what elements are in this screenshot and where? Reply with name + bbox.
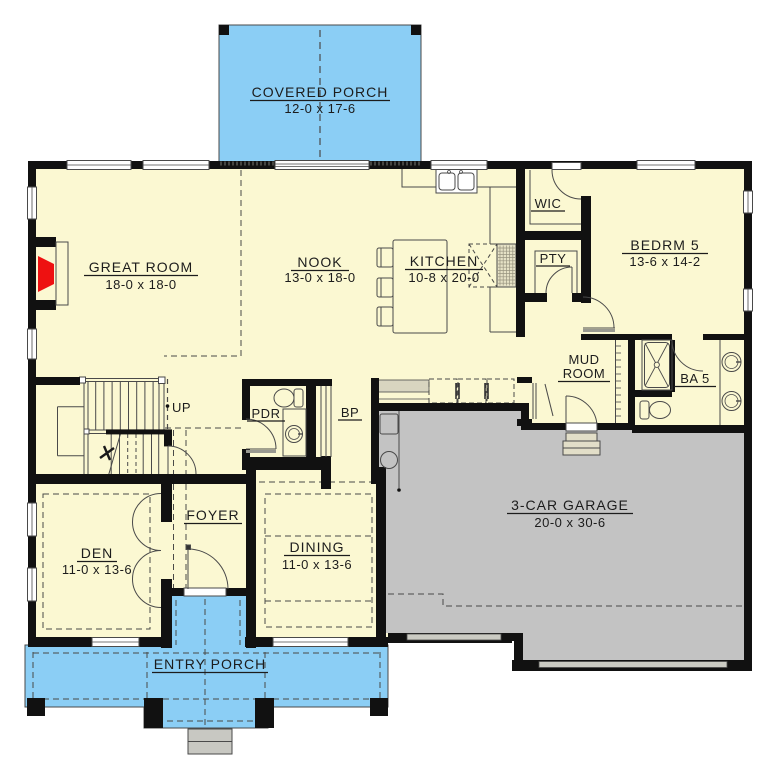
svg-text:COVERED PORCH: COVERED PORCH	[252, 84, 389, 100]
svg-text:BA 5: BA 5	[680, 371, 709, 386]
svg-text:PDR: PDR	[252, 406, 281, 421]
svg-text:13-6 x 14-2: 13-6 x 14-2	[629, 254, 700, 269]
svg-text:3-CAR GARAGE: 3-CAR GARAGE	[511, 497, 629, 513]
svg-text:BEDRM 5: BEDRM 5	[630, 237, 699, 253]
svg-text:18-0 x 18-0: 18-0 x 18-0	[105, 277, 176, 292]
svg-text:MUD: MUD	[568, 352, 599, 367]
svg-text:WIC: WIC	[535, 196, 562, 211]
svg-text:KITCHEN: KITCHEN	[410, 253, 478, 269]
svg-text:GREAT ROOM: GREAT ROOM	[89, 259, 193, 275]
svg-text:DINING: DINING	[290, 539, 345, 555]
svg-text:11-0 x 13-6: 11-0 x 13-6	[282, 557, 352, 572]
svg-text:11-0 x 13-6: 11-0 x 13-6	[62, 562, 132, 577]
svg-text:ENTRY PORCH: ENTRY PORCH	[154, 656, 266, 672]
svg-text:DEN: DEN	[81, 545, 114, 561]
svg-text:20-0 x 30-6: 20-0 x 30-6	[534, 515, 605, 530]
svg-text:BP: BP	[341, 405, 359, 420]
svg-text:PTY: PTY	[540, 251, 567, 266]
svg-text:10-8 x 20-0: 10-8 x 20-0	[408, 270, 479, 285]
svg-text:NOOK: NOOK	[297, 254, 342, 270]
svg-text:FOYER: FOYER	[186, 507, 239, 523]
svg-text:ROOM: ROOM	[563, 366, 605, 381]
svg-text:13-0 x 18-0: 13-0 x 18-0	[284, 270, 355, 285]
svg-text:UP: UP	[172, 400, 191, 415]
svg-text:12-0 x 17-6: 12-0 x 17-6	[284, 101, 355, 116]
